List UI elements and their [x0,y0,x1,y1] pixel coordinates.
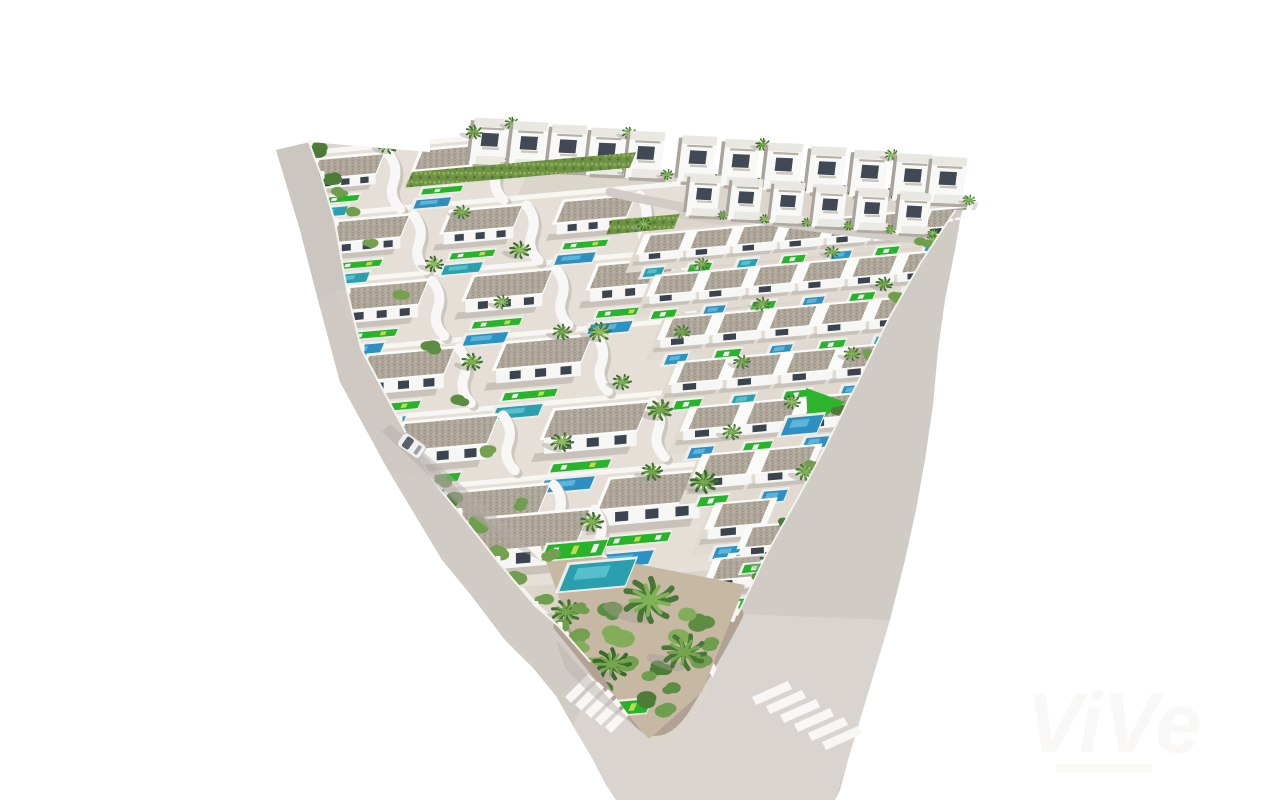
svg-text:ViVe: ViVe [1026,676,1202,770]
